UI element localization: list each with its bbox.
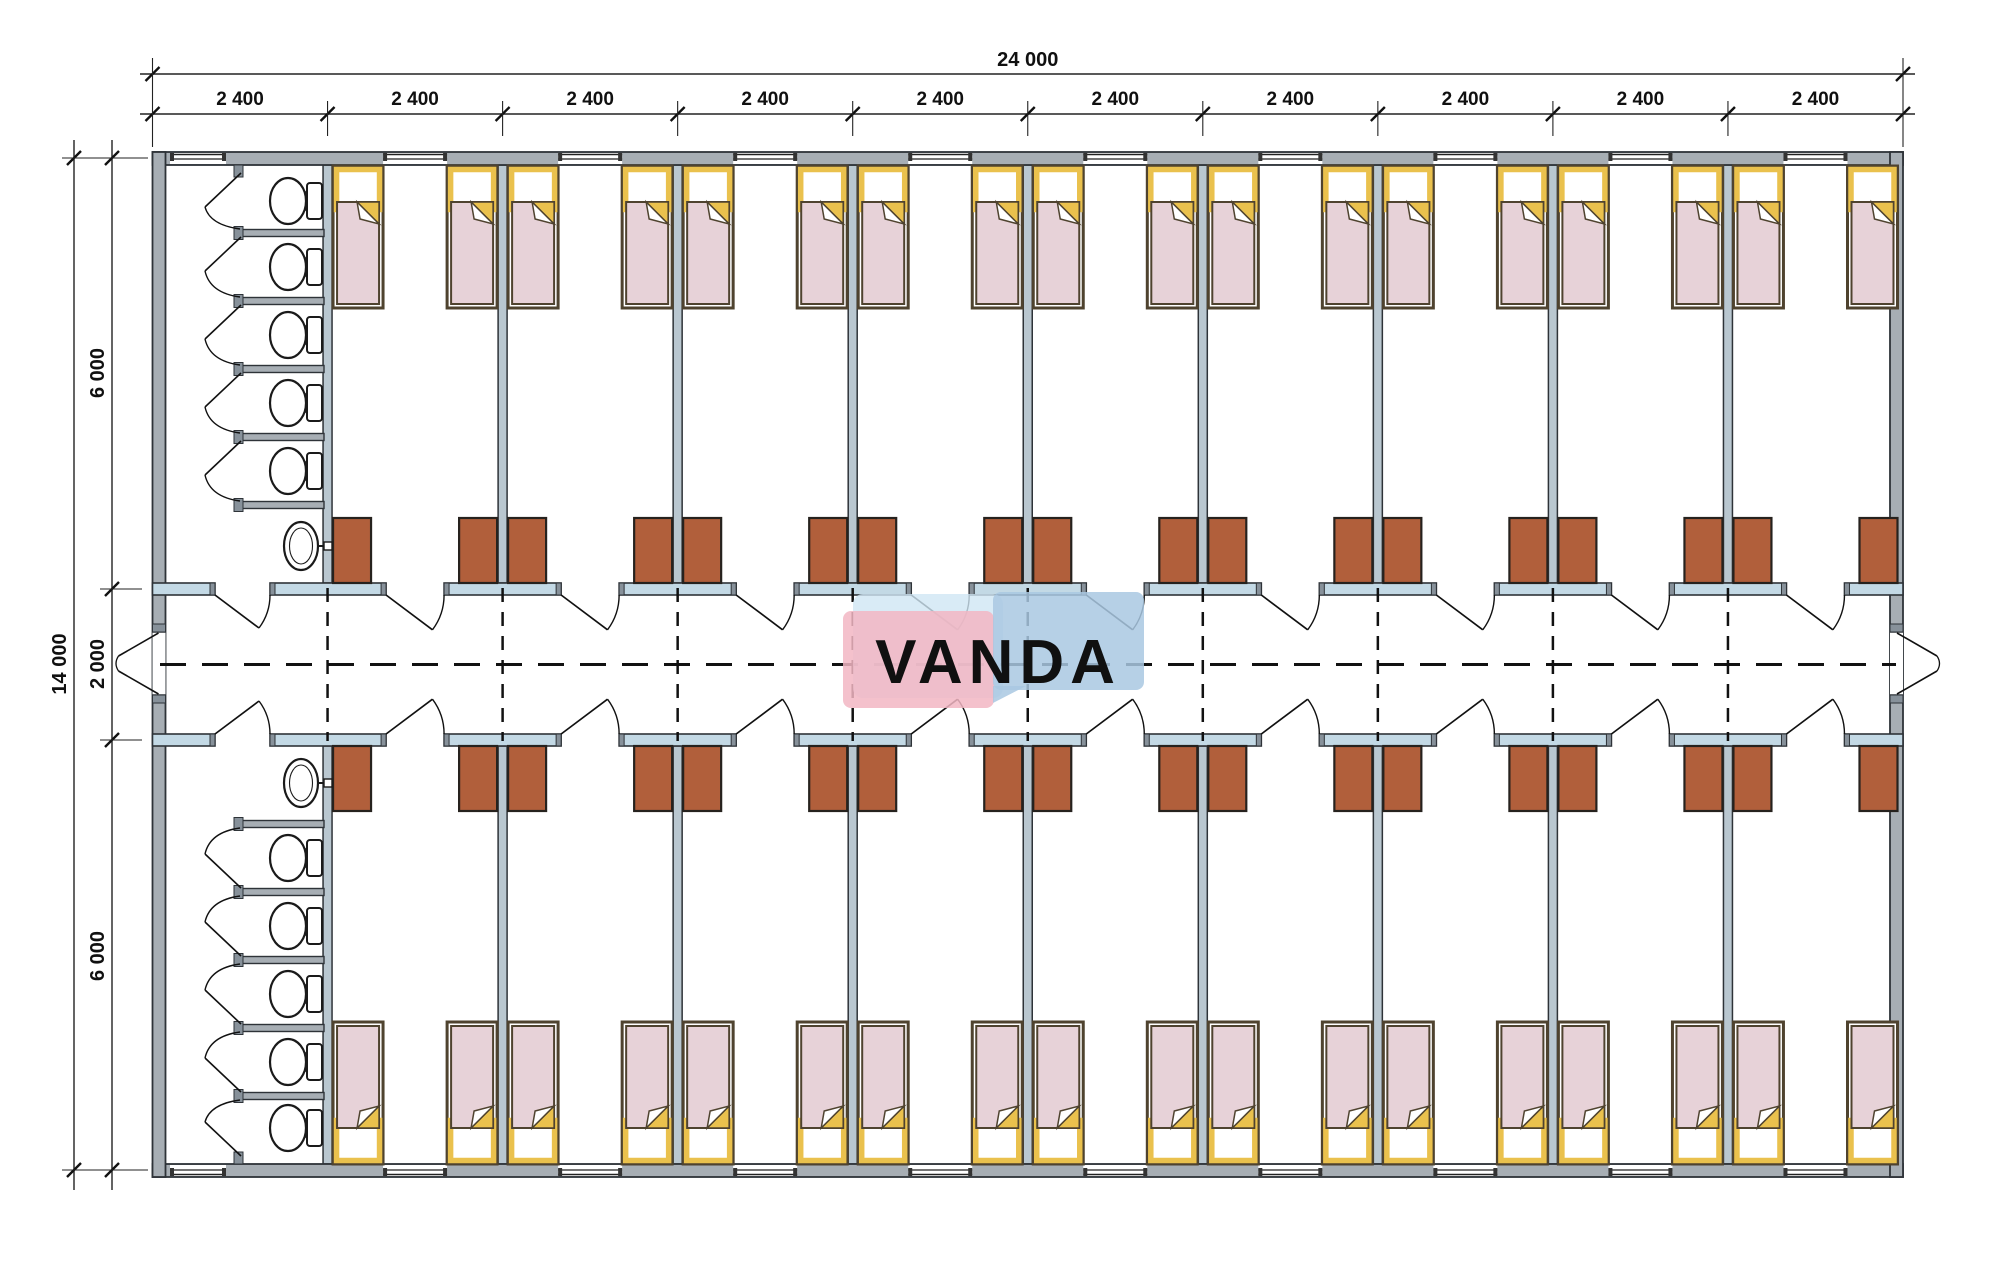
wardrobe bbox=[858, 746, 896, 811]
wardrobe bbox=[333, 746, 371, 811]
bed bbox=[1208, 166, 1258, 308]
bed bbox=[1208, 1022, 1258, 1164]
bed bbox=[1558, 1022, 1608, 1164]
bed bbox=[1733, 1022, 1783, 1164]
bed bbox=[683, 1022, 733, 1164]
dimension-label: 2 400 bbox=[1267, 89, 1315, 110]
window bbox=[1258, 1165, 1322, 1176]
window bbox=[1433, 153, 1497, 164]
wardrobe bbox=[1558, 518, 1596, 583]
bed bbox=[1497, 1022, 1547, 1164]
watermark-text: VANDA bbox=[875, 628, 1121, 697]
wardrobe bbox=[1159, 746, 1197, 811]
wardrobe bbox=[1159, 518, 1197, 583]
wardrobe bbox=[1860, 518, 1898, 583]
dimension-label: 2 400 bbox=[916, 89, 964, 110]
dimension-label: 6 000 bbox=[87, 931, 109, 981]
watermark: VANDA bbox=[843, 592, 1144, 708]
wardrobe bbox=[1684, 518, 1722, 583]
window bbox=[558, 1165, 622, 1176]
window bbox=[908, 153, 972, 164]
bed bbox=[1383, 1022, 1433, 1164]
dimension-label: 2 400 bbox=[1092, 89, 1140, 110]
wardrobe bbox=[1733, 746, 1771, 811]
wardrobe bbox=[1558, 746, 1596, 811]
bed bbox=[797, 1022, 847, 1164]
bed bbox=[1672, 166, 1722, 308]
bed bbox=[1383, 166, 1433, 308]
wardrobe bbox=[809, 746, 847, 811]
wardrobe bbox=[1509, 518, 1547, 583]
dimension-label: 24 000 bbox=[997, 49, 1058, 71]
wardrobe bbox=[809, 518, 847, 583]
toilet bbox=[270, 244, 322, 290]
wardrobe bbox=[1383, 746, 1421, 811]
bed bbox=[972, 166, 1022, 308]
wardrobe bbox=[508, 746, 546, 811]
toilet bbox=[270, 1039, 322, 1085]
bed bbox=[1497, 166, 1547, 308]
bed bbox=[1147, 166, 1197, 308]
window bbox=[1258, 153, 1322, 164]
bed bbox=[683, 166, 733, 308]
window bbox=[908, 1165, 972, 1176]
bed bbox=[972, 1022, 1022, 1164]
wardrobe bbox=[1208, 518, 1246, 583]
bed bbox=[508, 1022, 558, 1164]
toilet bbox=[270, 971, 322, 1017]
toilet bbox=[270, 448, 322, 494]
toilet bbox=[270, 380, 322, 426]
bed bbox=[797, 166, 847, 308]
dimension-label: 2 400 bbox=[741, 89, 789, 110]
wardrobe bbox=[984, 518, 1022, 583]
dimension-label: 2 400 bbox=[1442, 89, 1490, 110]
bed bbox=[447, 166, 497, 308]
window bbox=[1783, 153, 1847, 164]
bed bbox=[858, 1022, 908, 1164]
dimension-label: 2 400 bbox=[391, 89, 439, 110]
bed bbox=[1322, 1022, 1372, 1164]
wardrobe bbox=[1208, 746, 1246, 811]
dimension-label: 2 000 bbox=[87, 639, 109, 689]
bed bbox=[333, 166, 383, 308]
bed bbox=[447, 1022, 497, 1164]
bed bbox=[1848, 1022, 1898, 1164]
dimension-label: 2 400 bbox=[566, 89, 614, 110]
wardrobe bbox=[1334, 746, 1372, 811]
window bbox=[1608, 153, 1672, 164]
bed bbox=[333, 1022, 383, 1164]
wardrobe bbox=[1033, 518, 1071, 583]
window bbox=[1083, 1165, 1147, 1176]
bed bbox=[1558, 166, 1608, 308]
floor-plan-drawing: 24 0002 4002 4002 4002 4002 4002 4002 40… bbox=[0, 0, 2000, 1285]
wardrobe bbox=[1033, 746, 1071, 811]
bed bbox=[1322, 166, 1372, 308]
toilet bbox=[270, 178, 322, 224]
window bbox=[733, 153, 797, 164]
window bbox=[1433, 1165, 1497, 1176]
window bbox=[383, 153, 447, 164]
dimension-label: 2 400 bbox=[216, 89, 264, 110]
window bbox=[1783, 1165, 1847, 1176]
window bbox=[733, 1165, 797, 1176]
wardrobe bbox=[683, 746, 721, 811]
window bbox=[383, 1165, 447, 1176]
wardrobe bbox=[1383, 518, 1421, 583]
window bbox=[1083, 153, 1147, 164]
toilet bbox=[270, 312, 322, 358]
bed bbox=[1672, 1022, 1722, 1164]
wardrobe bbox=[1334, 518, 1372, 583]
dimension-label: 2 400 bbox=[1617, 89, 1665, 110]
bed bbox=[1033, 166, 1083, 308]
bed bbox=[858, 166, 908, 308]
window bbox=[1608, 1165, 1672, 1176]
bed bbox=[1147, 1022, 1197, 1164]
bed bbox=[622, 1022, 672, 1164]
toilet bbox=[270, 903, 322, 949]
bed bbox=[508, 166, 558, 308]
dimension-label: 2 400 bbox=[1792, 89, 1840, 110]
wardrobe bbox=[984, 746, 1022, 811]
dimension-label: 6 000 bbox=[87, 348, 109, 398]
wardrobe bbox=[333, 518, 371, 583]
wardrobe bbox=[634, 518, 672, 583]
wardrobe bbox=[634, 746, 672, 811]
wardrobe bbox=[508, 518, 546, 583]
bed bbox=[1033, 1022, 1083, 1164]
toilet bbox=[270, 1105, 322, 1151]
bed bbox=[1733, 166, 1783, 308]
wardrobe bbox=[1733, 518, 1771, 583]
wardrobe bbox=[1684, 746, 1722, 811]
wardrobe bbox=[459, 518, 497, 583]
floor-plan-page: 24 0002 4002 4002 4002 4002 4002 4002 40… bbox=[0, 0, 2000, 1285]
wardrobe bbox=[459, 746, 497, 811]
wardrobe bbox=[1509, 746, 1547, 811]
wardrobe bbox=[1860, 746, 1898, 811]
window bbox=[170, 153, 226, 164]
dimension-label: 14 000 bbox=[49, 633, 71, 694]
window bbox=[170, 1165, 226, 1176]
wardrobe bbox=[683, 518, 721, 583]
window bbox=[558, 153, 622, 164]
bed bbox=[1848, 166, 1898, 308]
toilet bbox=[270, 835, 322, 881]
bed bbox=[622, 166, 672, 308]
wardrobe bbox=[858, 518, 896, 583]
